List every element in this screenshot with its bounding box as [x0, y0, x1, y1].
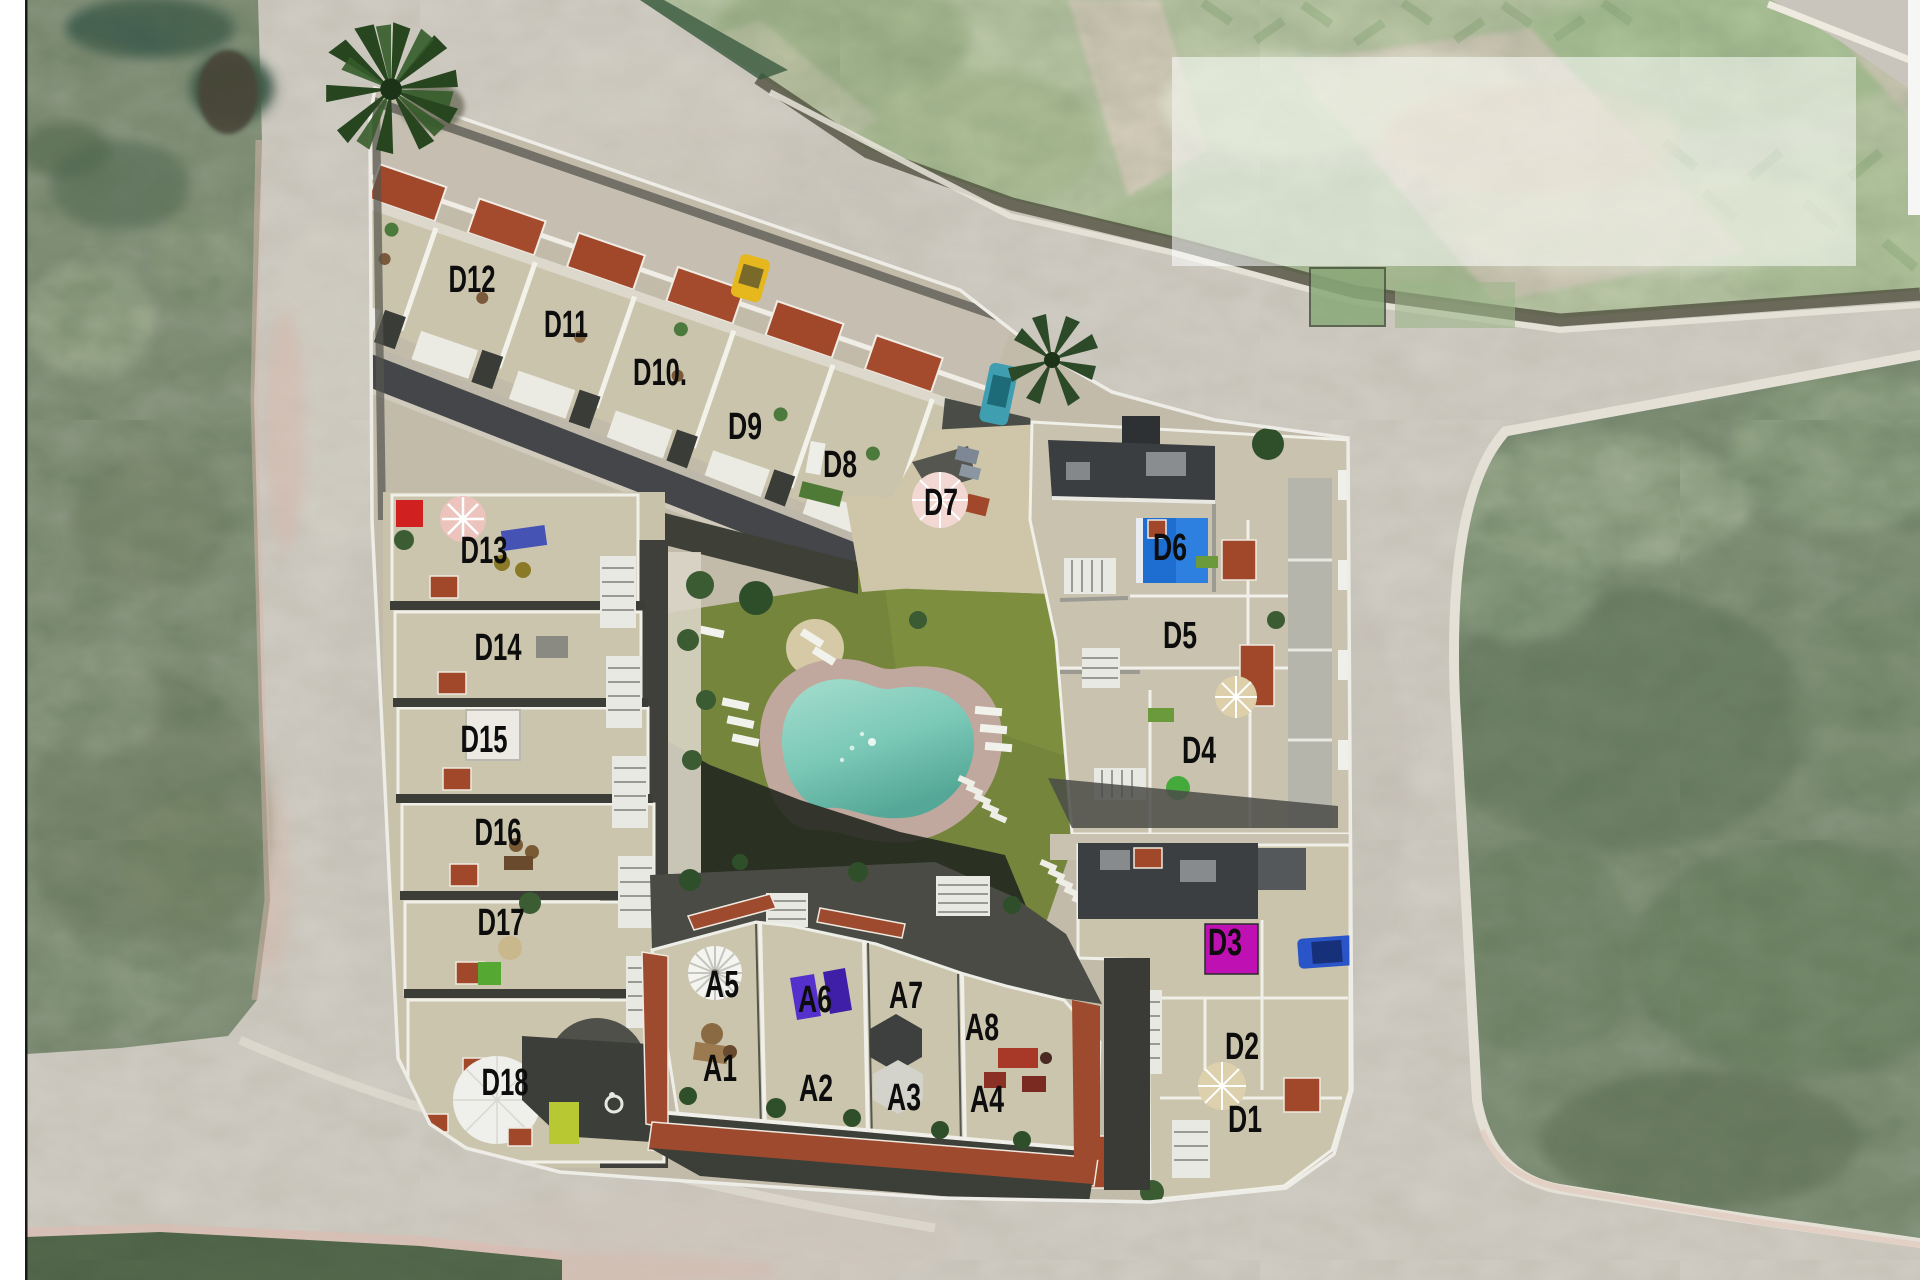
svg-text:D12: D12	[449, 259, 496, 301]
svg-text:D9: D9	[728, 406, 762, 448]
svg-text:D2: D2	[1225, 1026, 1259, 1068]
svg-text:D16: D16	[475, 812, 522, 854]
svg-text:D7: D7	[924, 482, 958, 524]
svg-text:D8: D8	[823, 444, 857, 486]
svg-text:D15: D15	[461, 719, 508, 761]
svg-text:D4: D4	[1182, 730, 1216, 772]
svg-text:D11: D11	[544, 304, 588, 346]
svg-text:A2: A2	[799, 1068, 833, 1110]
svg-text:A5: A5	[705, 964, 739, 1006]
svg-text:D1: D1	[1228, 1099, 1262, 1141]
svg-text:A7: A7	[889, 975, 923, 1017]
svg-text:D14: D14	[475, 627, 522, 669]
svg-text:D18: D18	[482, 1062, 529, 1104]
svg-text:D3: D3	[1208, 922, 1242, 964]
svg-text:A3: A3	[887, 1077, 921, 1119]
svg-text:D5: D5	[1163, 615, 1197, 657]
svg-text:A6: A6	[798, 979, 832, 1021]
svg-text:D13: D13	[461, 530, 508, 572]
svg-text:A4: A4	[970, 1079, 1004, 1121]
svg-text:D17: D17	[478, 902, 525, 944]
svg-text:A8: A8	[965, 1007, 999, 1049]
svg-text:D6: D6	[1153, 527, 1187, 569]
svg-text:A1: A1	[703, 1048, 737, 1090]
svg-text:D10.: D10.	[633, 352, 687, 394]
